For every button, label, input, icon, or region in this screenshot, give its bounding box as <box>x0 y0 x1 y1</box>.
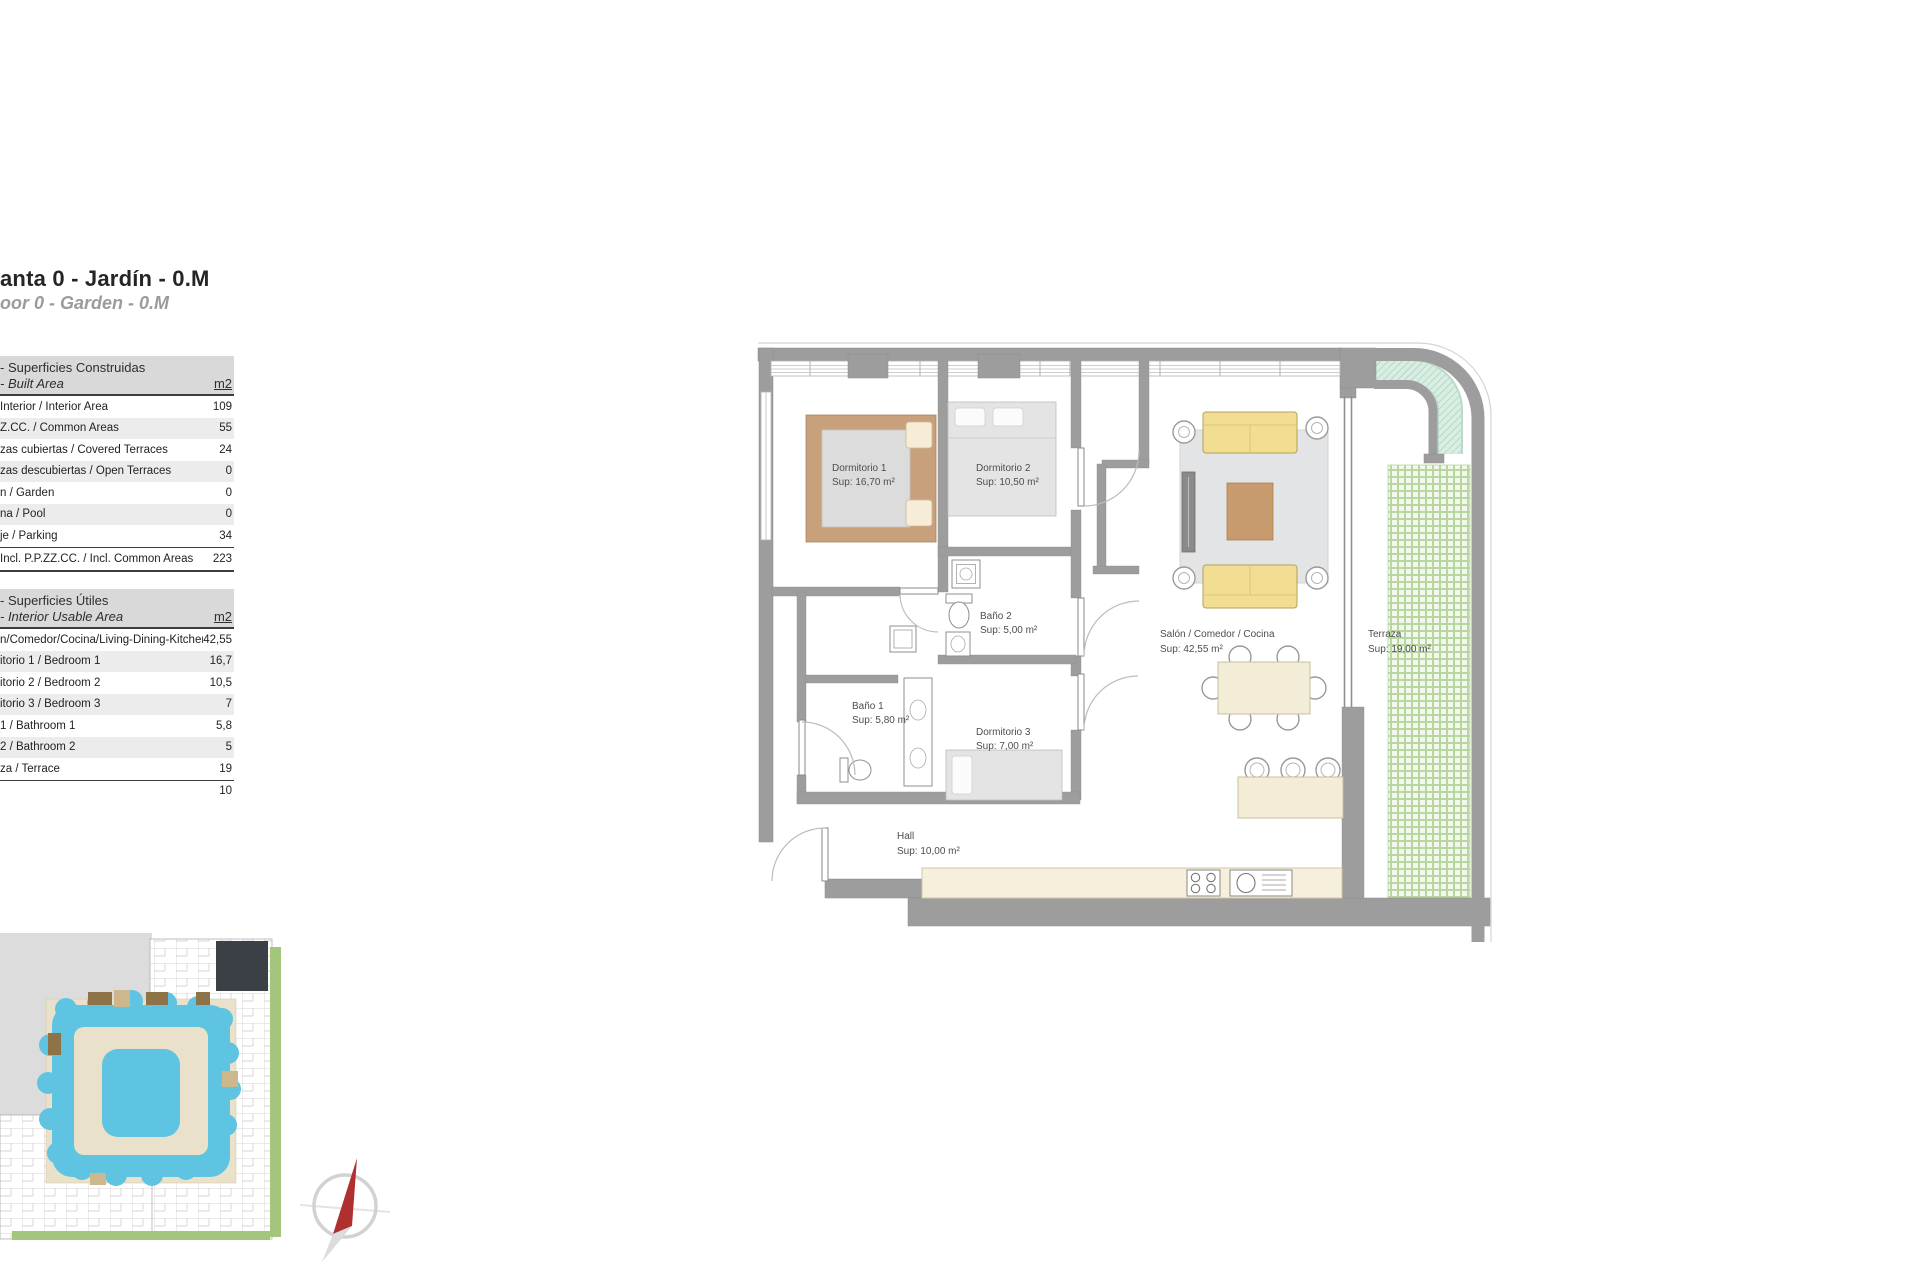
row-value: 34 <box>219 530 234 542</box>
room-label-dormitorio-3: Dormitorio 3 <box>976 727 1031 738</box>
table-row: je / Parking34 <box>0 525 234 547</box>
row-label: za / Terrace <box>0 763 60 775</box>
row-value: 19 <box>219 763 234 775</box>
row-value: 5 <box>226 741 234 753</box>
room-label-bano-1: Baño 1 <box>852 701 884 712</box>
row-label: 2 / Bathroom 2 <box>0 741 75 753</box>
unit-label: m2 <box>214 376 234 392</box>
built-area-total-row: Incl. P.P.ZZ.CC. / Incl. Common Areas 22… <box>0 547 234 572</box>
stove <box>1187 870 1220 896</box>
row-value: 0 <box>226 508 234 520</box>
usable-area-table-header: - Superficies Útiles - Interior Usable A… <box>0 589 234 629</box>
north-arrow-icon <box>298 1150 393 1270</box>
room-sup-bano-2: Sup: 5,00 m² <box>980 625 1038 636</box>
kitchen-counter <box>922 868 1342 898</box>
table-row: itorio 3 / Bedroom 37 <box>0 694 234 716</box>
green-strip-south <box>12 1231 270 1240</box>
room-label-bano-2: Baño 2 <box>980 611 1012 622</box>
room-sup-bano-1: Sup: 5,80 m² <box>852 715 910 726</box>
row-value: 24 <box>219 444 234 456</box>
table-row: itorio 2 / Bedroom 210,5 <box>0 672 234 694</box>
room-sup-dormitorio-2: Sup: 10,50 m² <box>976 477 1039 488</box>
room-label-dormitorio-2: Dormitorio 2 <box>976 463 1031 474</box>
table-title-es: - Superficies Construidas <box>0 360 234 376</box>
table-row: 10 <box>0 781 234 803</box>
kitchen-island <box>1238 758 1343 818</box>
table-title-es: - Superficies Útiles <box>0 593 234 609</box>
coffee-table <box>1227 483 1273 540</box>
total-label: Incl. P.P.ZZ.CC. / Incl. Common Areas <box>0 553 193 565</box>
row-value: 16,7 <box>210 655 234 667</box>
usable-area-table: - Superficies Útiles - Interior Usable A… <box>0 589 234 802</box>
living-room-furniture <box>1173 412 1328 608</box>
bed-dormitorio-3 <box>946 750 1062 800</box>
room-sup-salon: Sup: 42,55 m² <box>1160 644 1223 655</box>
unit-label: m2 <box>214 609 234 625</box>
row-value: 42,55 <box>203 634 234 646</box>
table-row: zas cubiertas / Covered Terraces24 <box>0 439 234 461</box>
bed-dormitorio-2 <box>948 402 1056 516</box>
page-subtitle: oor 0 - Garden - 0.M <box>0 293 169 314</box>
row-label: zas descubiertas / Open Terraces <box>0 465 171 477</box>
row-value: 0 <box>226 465 234 477</box>
room-label-dormitorio-1: Dormitorio 1 <box>832 463 887 474</box>
row-label: itorio 1 / Bedroom 1 <box>0 655 100 667</box>
table-row: zas descubiertas / Open Terraces0 <box>0 461 234 483</box>
row-label: na / Pool <box>0 508 45 520</box>
room-label-salon: Salón / Comedor / Cocina <box>1160 629 1275 640</box>
row-label: Interior / Interior Area <box>0 401 108 413</box>
built-area-table-header: - Superficies Construidas - Built Area m… <box>0 356 234 396</box>
row-label: zas cubiertas / Covered Terraces <box>0 444 168 456</box>
row-value: 10,5 <box>210 677 234 689</box>
row-label: n / Garden <box>0 487 54 499</box>
room-sup-hall: Sup: 10,00 m² <box>897 846 960 857</box>
side-window <box>761 392 771 540</box>
room-label-hall: Hall <box>897 831 914 842</box>
row-value: 5,8 <box>216 720 234 732</box>
usable-area-rows: n/Comedor/Cocina/Living-Dining-Kitchen42… <box>0 629 234 802</box>
highlighted-unit <box>216 941 268 991</box>
table-title-en: - Built Area <box>0 376 64 392</box>
page-title: anta 0 - Jardín - 0.M <box>0 266 210 292</box>
table-row: 1 / Bathroom 15,8 <box>0 715 234 737</box>
row-value: 10 <box>219 785 234 797</box>
table-row: n/Comedor/Cocina/Living-Dining-Kitchen42… <box>0 629 234 651</box>
row-label: Z.CC. / Common Areas <box>0 422 119 434</box>
room-sup-dormitorio-3: Sup: 7,00 m² <box>976 741 1034 752</box>
site-key-plan <box>0 933 300 1280</box>
row-label: itorio 2 / Bedroom 2 <box>0 677 100 689</box>
row-label: n/Comedor/Cocina/Living-Dining-Kitchen <box>0 634 203 646</box>
wall-cap <box>1424 454 1444 463</box>
built-area-rows: Interior / Interior Area109Z.CC. / Commo… <box>0 396 234 547</box>
table-row: Z.CC. / Common Areas55 <box>0 418 234 440</box>
green-strip-east <box>270 947 281 1237</box>
table-title-en: - Interior Usable Area <box>0 609 123 625</box>
inner-curved-wall <box>1374 385 1433 459</box>
built-area-table: - Superficies Construidas - Built Area m… <box>0 356 234 572</box>
table-row: Interior / Interior Area109 <box>0 396 234 418</box>
terrace-glass-door <box>1345 396 1352 707</box>
row-value: 55 <box>219 422 234 434</box>
table-row: na / Pool0 <box>0 504 234 526</box>
row-label: je / Parking <box>0 530 58 542</box>
table-row: 2 / Bathroom 25 <box>0 737 234 759</box>
room-label-terraza: Terraza <box>1368 629 1402 640</box>
terrace-floor <box>1388 465 1470 900</box>
courtyard-pool <box>37 990 241 1186</box>
plan-sheet: anta 0 - Jardín - 0.M oor 0 - Garden - 0… <box>0 0 1920 1280</box>
room-sup-dormitorio-1: Sup: 16,70 m² <box>832 477 895 488</box>
row-label: itorio 3 / Bedroom 3 <box>0 698 100 710</box>
dining-table <box>1202 646 1326 730</box>
row-value: 109 <box>213 401 234 413</box>
room-sup-terraza: Sup: 19,00 m² <box>1368 644 1431 655</box>
floor-plan: Dormitorio 1 Sup: 16,70 m² Dormitorio 2 … <box>740 330 1520 950</box>
table-row: itorio 1 / Bedroom 116,7 <box>0 651 234 673</box>
row-value: 0 <box>226 487 234 499</box>
row-value: 7 <box>226 698 234 710</box>
table-row: n / Garden0 <box>0 482 234 504</box>
table-row: za / Terrace19 <box>0 758 234 781</box>
bathroom-2-fixtures <box>946 560 980 656</box>
row-label: 1 / Bathroom 1 <box>0 720 75 732</box>
total-value: 223 <box>213 553 234 565</box>
